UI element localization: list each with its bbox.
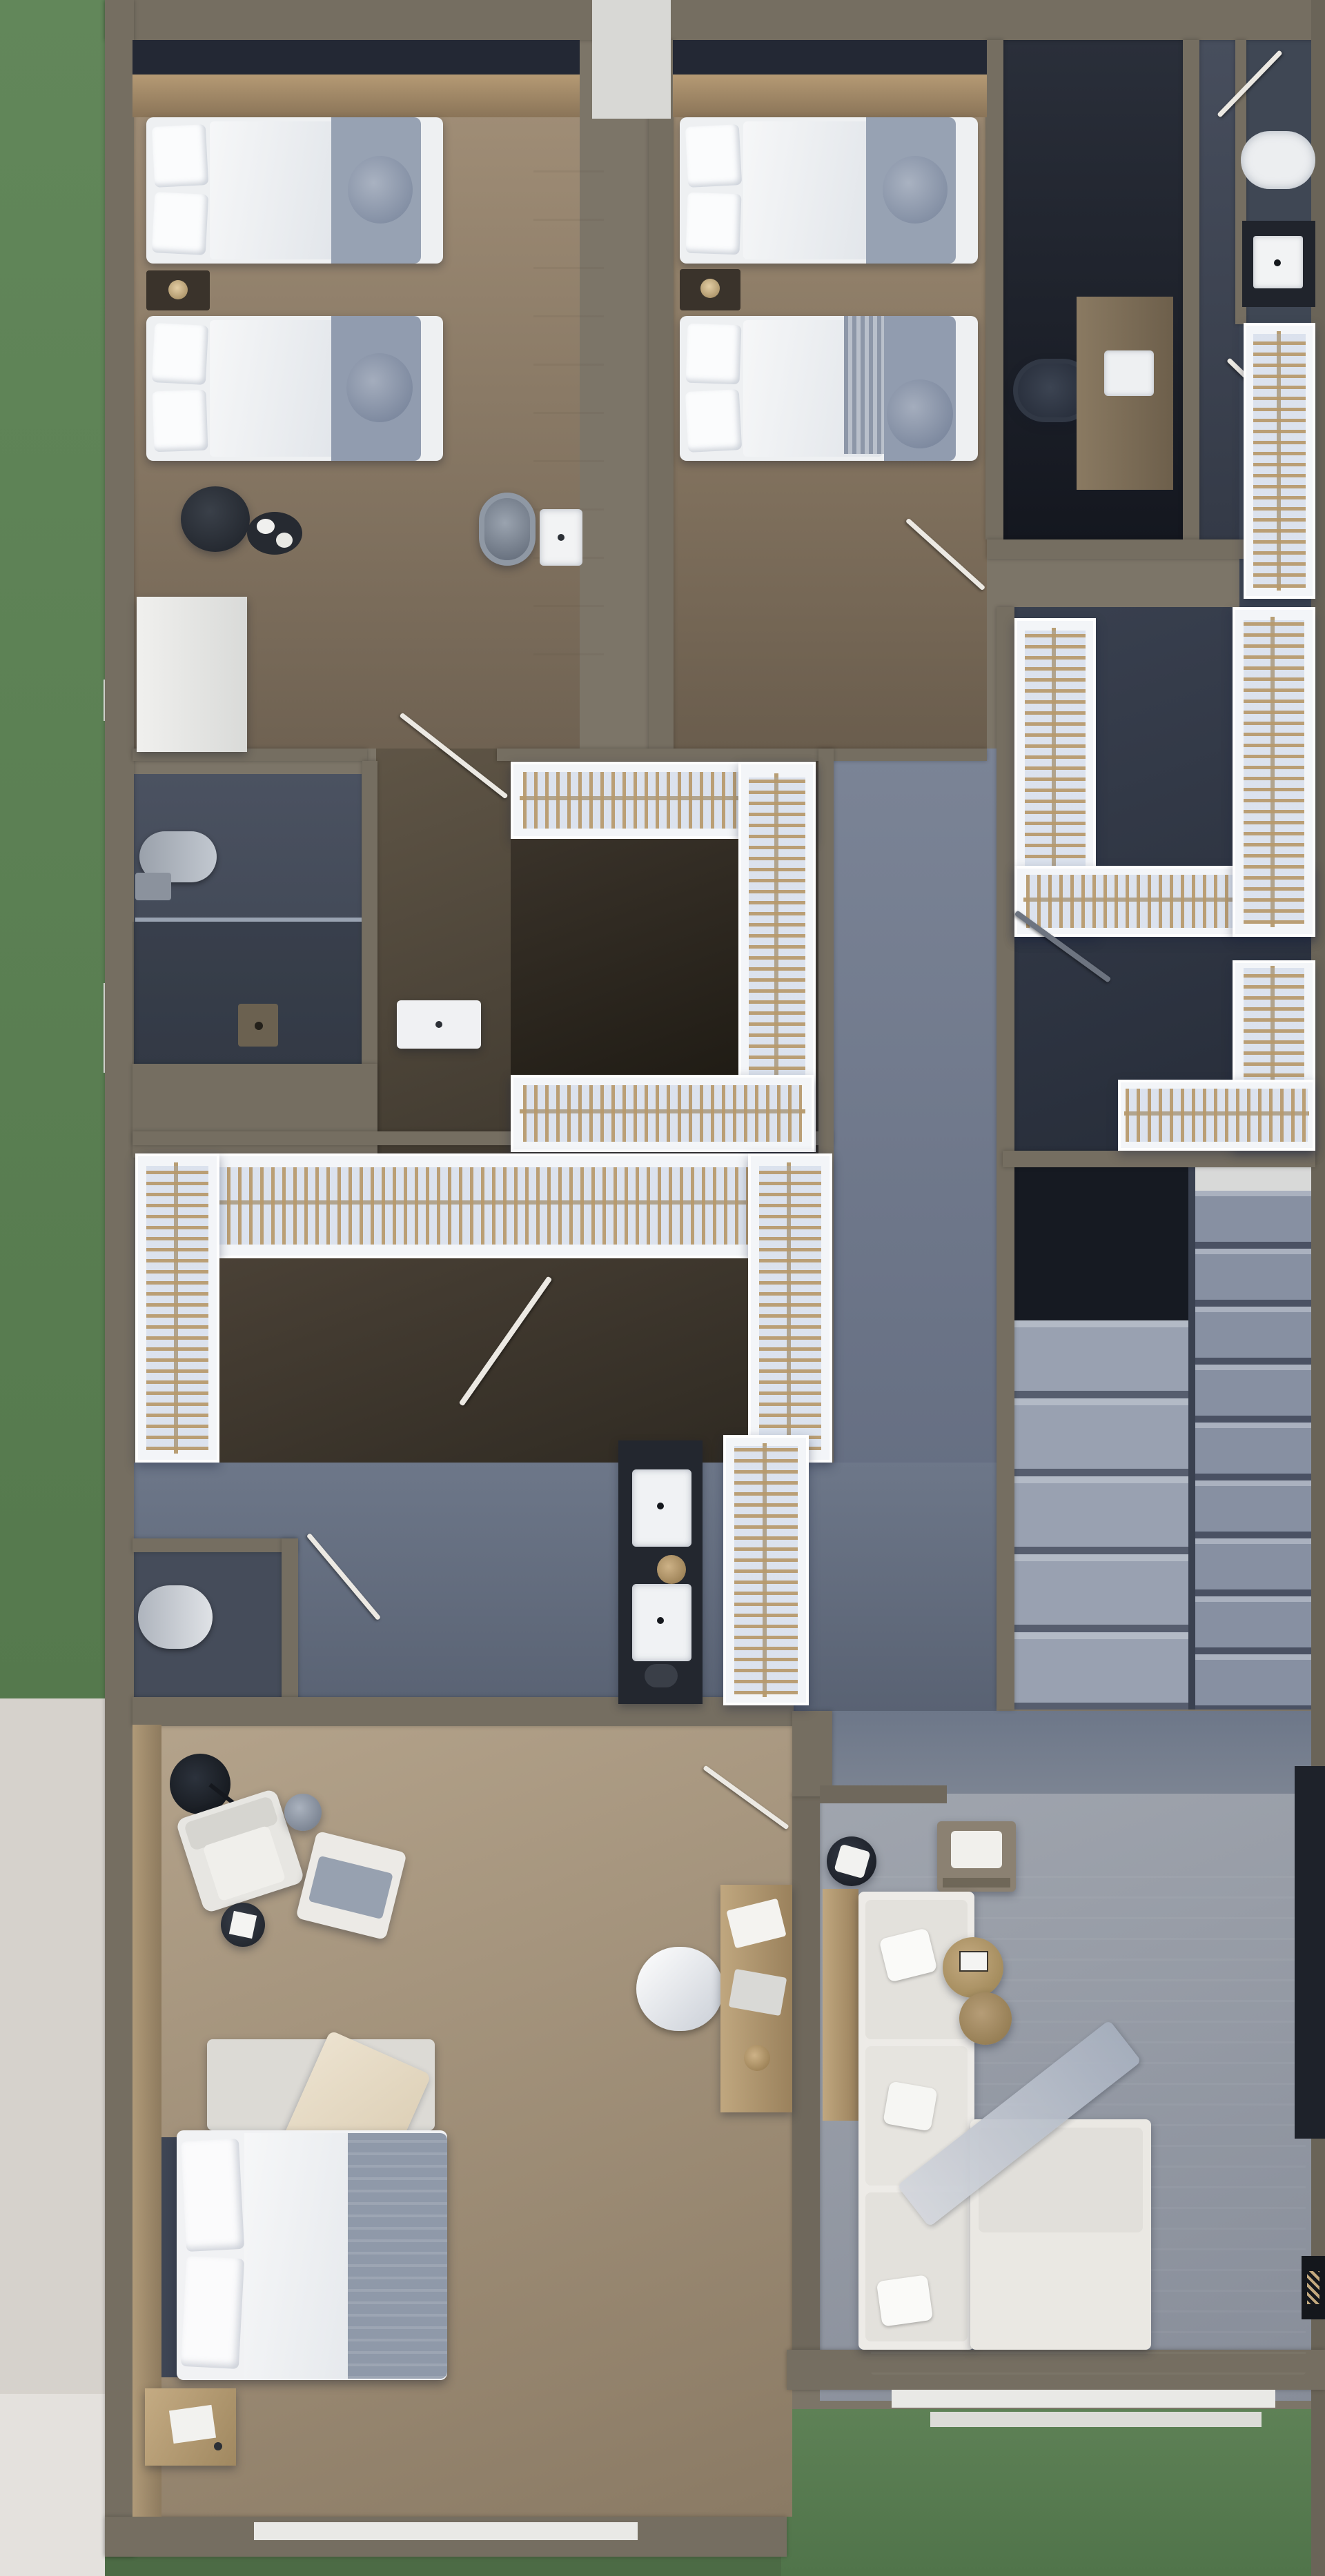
- book-on-table: [959, 1951, 988, 1972]
- wall-master-partition: [792, 1794, 820, 2387]
- cistern-shower-room: [135, 873, 171, 900]
- side-table-black-right: [1302, 2256, 1325, 2319]
- vanity-black-bathc: [1242, 221, 1315, 307]
- ottoman-throw: [308, 1856, 393, 1920]
- decor-gold-squiggle: [1307, 2271, 1319, 2304]
- pendant-ball-master: [284, 1794, 322, 1831]
- decor-gold: [657, 1555, 686, 1584]
- wardrobe-column: [592, 0, 671, 119]
- wall-bedroom-divider: [649, 40, 674, 751]
- longcloset-rail-top: [145, 1153, 821, 1258]
- grass-strip-bottom-left: [105, 2557, 781, 2576]
- bedroom2-wood-trim: [673, 75, 987, 117]
- closetC-inner-floor: [511, 839, 738, 1075]
- console-behind-sofa: [823, 1889, 858, 2121]
- faucet-dot: [558, 534, 565, 541]
- bedroom1-headboard-wall: [132, 40, 580, 75]
- closetC-rail-bottom: [511, 1075, 814, 1152]
- armchair-living: [937, 1821, 1016, 1892]
- pillow: [686, 324, 742, 385]
- tray-oval: [645, 1664, 678, 1687]
- napkin: [229, 1911, 257, 1939]
- stool-bedroom1: [181, 486, 250, 552]
- blanket-swirl: [348, 156, 413, 224]
- towel: [729, 1969, 787, 2016]
- twin-bed-2b: [680, 316, 978, 461]
- coffee-table-small: [959, 1992, 1012, 2045]
- blanket-gray: [348, 2133, 447, 2379]
- dot: [214, 2442, 222, 2450]
- stairwell-void: [1008, 1167, 1188, 1320]
- twin-bed-2a: [680, 117, 978, 264]
- lamp: [700, 279, 720, 298]
- wall-livingroom-topleft: [792, 1711, 832, 1796]
- headboard: [161, 2137, 178, 2377]
- pillow: [181, 2139, 244, 2252]
- grass-left: [0, 0, 105, 1698]
- shower-drain: [238, 1004, 278, 1047]
- wall-top: [105, 0, 1325, 40]
- closet-strip-topright: [1244, 323, 1315, 599]
- closet1-rail-right: [1233, 607, 1315, 937]
- window-sill-living-2: [930, 2412, 1262, 2427]
- duvet: [210, 121, 348, 259]
- dresser-bedroom1: [137, 597, 247, 752]
- cup: [276, 533, 293, 548]
- basin-steel: [479, 493, 536, 566]
- faucet-dot: [657, 1617, 664, 1624]
- sink-square-bedroom1: [540, 509, 582, 566]
- pillow: [152, 323, 208, 385]
- bedroom1-wood-trim: [132, 75, 580, 117]
- vanity-desk-bedroom1: [533, 131, 604, 655]
- tray-bedroom1: [247, 512, 302, 555]
- stair-landing: [1194, 1167, 1315, 1191]
- grass-bottom: [781, 2409, 1325, 2576]
- faucet-dot: [435, 1021, 442, 1028]
- twin-bed-1b: [146, 316, 443, 461]
- pillow: [152, 390, 208, 453]
- faucet-dot: [1274, 259, 1281, 266]
- wall-batha-corridor: [1183, 40, 1199, 539]
- decor-gold: [744, 2045, 770, 2071]
- bathtub-white-bathc: [1241, 131, 1315, 189]
- round-table-black-living: [827, 1836, 876, 1886]
- pillow: [181, 2256, 244, 2369]
- duvet: [743, 121, 883, 259]
- vanity-wood-master: [720, 1885, 792, 2112]
- toss-pillow: [876, 2275, 933, 2327]
- stair-divider: [1188, 1167, 1195, 1710]
- twin-bed-1a: [146, 117, 443, 264]
- media-wall-dark: [1295, 1766, 1325, 2139]
- longcloset-rail-right: [748, 1153, 832, 1463]
- coffee-table-large: [943, 1937, 1003, 1998]
- wall-toilet2-top: [132, 1538, 297, 1552]
- duvet: [244, 2133, 349, 2379]
- nightstand-bedroom1: [146, 270, 210, 310]
- wall-bedrooms-south-b: [497, 749, 987, 761]
- side-table-dark-master: [221, 1903, 265, 1947]
- wall-left: [105, 0, 134, 2557]
- longcloset-rail-left: [135, 1153, 219, 1463]
- master-bed: [161, 2130, 451, 2383]
- sink-square-batha: [1104, 350, 1154, 396]
- vanity-double-counter: [618, 1440, 703, 1704]
- stair-flight-left: [1008, 1320, 1188, 1710]
- window-sill-master-bottom: [254, 2522, 638, 2540]
- longcloset-inner-floor: [219, 1258, 748, 1463]
- cushion: [951, 1831, 1002, 1868]
- pillow-on-table: [834, 1844, 870, 1879]
- blanket-fringe: [844, 316, 885, 454]
- bedroom2-headboard-wall: [673, 40, 987, 75]
- wall-closet-stairs: [1003, 1151, 1315, 1167]
- blanket-swirl: [887, 379, 953, 448]
- nightstand-master: [145, 2388, 236, 2466]
- book: [169, 2405, 216, 2444]
- window-sill-living-1: [892, 2390, 1275, 2408]
- pillow: [685, 389, 742, 453]
- stair-flight-right: [1194, 1191, 1315, 1710]
- nightstand-bedroom2: [680, 269, 740, 310]
- wall-bedroom2-batha: [985, 40, 1003, 539]
- toilet-room2-toilet: [138, 1585, 213, 1649]
- wall-livingroom-top-piece: [820, 1785, 947, 1803]
- vanity-white-dressing: [397, 1000, 481, 1049]
- closet-strip-mid: [723, 1435, 809, 1705]
- blanket-swirl: [883, 156, 948, 224]
- pillow: [152, 192, 208, 255]
- blanket-swirl: [346, 353, 413, 422]
- closet2-rail-bottom: [1118, 1080, 1315, 1151]
- wall-toilet2-right: [282, 1538, 298, 1703]
- drain-dot: [255, 1022, 263, 1030]
- pillow: [685, 124, 742, 188]
- toss-pillow: [883, 2081, 938, 2131]
- frame-bar: [943, 1878, 1010, 1888]
- toilet-master-suite: [636, 1947, 723, 2031]
- towel: [726, 1899, 786, 1949]
- path-left-lower: [0, 2394, 105, 2576]
- floorplan-render: [0, 0, 1325, 2576]
- duvet: [210, 320, 348, 457]
- wall-topright-bottom: [987, 539, 1246, 559]
- faucet-dot: [657, 1503, 664, 1509]
- cup: [257, 519, 275, 534]
- pillow: [685, 192, 741, 255]
- pillow: [152, 124, 208, 188]
- lamp: [168, 280, 188, 299]
